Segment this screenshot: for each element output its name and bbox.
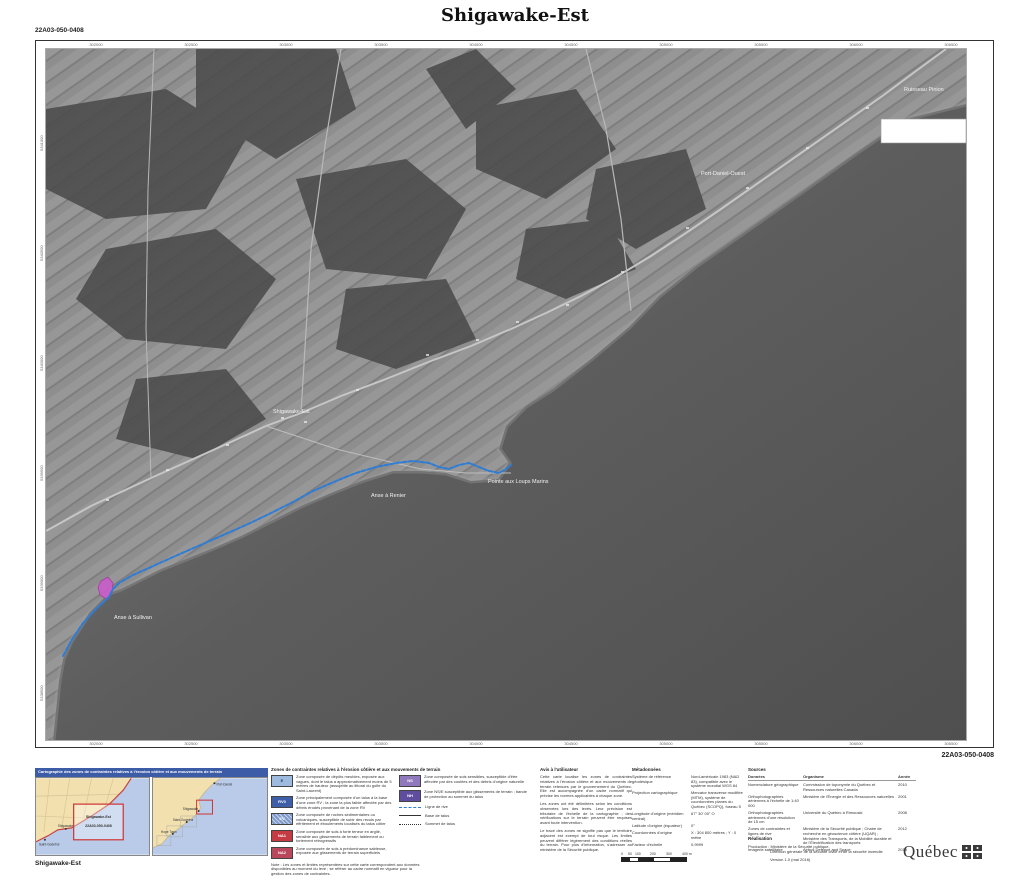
tick-label: 305000 bbox=[651, 741, 681, 746]
tick-label: 305500 bbox=[746, 741, 776, 746]
legend-item: NH Zone NS/E susceptible aux glissements… bbox=[399, 790, 531, 802]
map-label-pointe-aux-loups-marins: Pointe aux Loups Marins bbox=[488, 479, 549, 485]
legend-column-1: E Zone composée de dépôts meubles, expos… bbox=[271, 775, 393, 877]
metadata-value: 0,9999 bbox=[691, 843, 744, 848]
metadata-label: Facteur d'échelle bbox=[632, 843, 691, 848]
realisation-section: Réalisation Production : Ministère de la… bbox=[748, 836, 916, 862]
map-label-ruisseau-pinion: Ruisseau Pinion bbox=[904, 87, 944, 93]
sources-title: Sources bbox=[748, 767, 916, 772]
legend-swatch: E bbox=[271, 775, 293, 787]
tick-label: 303500 bbox=[366, 42, 396, 47]
tick-label: 304000 bbox=[461, 42, 491, 47]
aerial-imagery-svg: Ruisseau Pinion Port-Daniel-Ouest Shigaw… bbox=[46, 49, 966, 740]
metadata-value: X : 304 800 mètres ; Y : 0 mètre bbox=[691, 831, 744, 840]
locator-sheet-code: 22A03-050-0408 bbox=[85, 824, 112, 828]
legend-title: Zones de contraintes relatives à l'érosi… bbox=[271, 767, 533, 772]
legend-item-text: Zone composée de dépôts meubles, exposée… bbox=[296, 775, 393, 793]
caption-sheet-name: Shigawake-Est bbox=[35, 860, 81, 867]
quebec-logo: Québec bbox=[903, 842, 1013, 862]
legend-line-label: Ligne de rive bbox=[425, 805, 448, 810]
quebec-flag-icon bbox=[962, 845, 982, 859]
metadata-title: Métadonnées bbox=[632, 767, 744, 772]
scale-label: 100 bbox=[635, 852, 641, 856]
page-title: Shigawake-Est bbox=[0, 5, 1030, 26]
tick-label: 5340000 bbox=[39, 355, 44, 371]
sources-col-header: Données bbox=[748, 775, 803, 780]
notice-paragraph: Cette carte localise les zones de contra… bbox=[540, 775, 632, 799]
metadata-value: Mercator transverse modifiée (MTM), syst… bbox=[691, 791, 744, 809]
sheet-code-bottom: 22A03-050-0408 bbox=[795, 752, 994, 759]
legend-line-item: Sommet de talus bbox=[399, 822, 531, 827]
metadata-label: Latitude d'origine (équateur) bbox=[632, 824, 691, 829]
legend-item: E Zone composée de dépôts meubles, expos… bbox=[271, 775, 393, 793]
legend-swatch: NA1 bbox=[271, 830, 293, 842]
slope-base-line-symbol bbox=[399, 815, 421, 816]
tick-label: 303000 bbox=[271, 42, 301, 47]
legend-swatch: NS bbox=[399, 775, 421, 787]
source-data: Orthophotographies aériennes d'une résol… bbox=[748, 811, 803, 825]
metadata-section: Métadonnées Système de référence géodési… bbox=[632, 767, 744, 850]
slope-top-line-symbol bbox=[399, 824, 421, 825]
quebec-wordmark: Québec bbox=[903, 842, 958, 862]
legend-line-item: Base de talus bbox=[399, 814, 531, 819]
metadata-row: Latitude d'origine (équateur) 0° bbox=[632, 824, 744, 829]
realisation-title: Réalisation bbox=[748, 836, 916, 841]
locator-town-shigawake-2: Shigawake bbox=[183, 807, 199, 811]
sources-row: Orthophotographies aériennes à l'échelle… bbox=[748, 795, 916, 809]
map-label-anse-a-sullivan: Anse à Sullivan bbox=[114, 615, 152, 621]
sources-col-header: Année bbox=[898, 775, 916, 780]
sheet-code-top: 22A03-050-0408 bbox=[35, 27, 84, 34]
legend: Zones de contraintes relatives à l'érosi… bbox=[271, 767, 533, 877]
tick-label: 5340500 bbox=[39, 245, 44, 261]
locator-panel: Cartographie des zones de contraintes re… bbox=[35, 768, 268, 856]
scale-label: 300 bbox=[666, 852, 672, 856]
locator-map-detail: Shigawake-Est 22A03-050-0408 Shigawake S… bbox=[35, 777, 150, 856]
legend-item-text: Zone principalement composée d'un talus … bbox=[296, 796, 393, 810]
tick-label: 5341000 bbox=[39, 135, 44, 151]
legend-item: EV Zone composée de roches sédimentaires… bbox=[271, 813, 393, 827]
legend-item-text: Zone composée de roches sédimentaires ou… bbox=[296, 813, 393, 827]
source-org: Université du Québec à Rimouski bbox=[803, 811, 898, 825]
aerial-imagery: Ruisseau Pinion Port-Daniel-Ouest Shigaw… bbox=[46, 49, 966, 740]
scale-label: 200 bbox=[650, 852, 656, 856]
source-data: Nomenclature géographique bbox=[748, 783, 803, 792]
tick-label: 5338500 bbox=[39, 685, 44, 701]
scale-label: 0 bbox=[621, 852, 623, 856]
source-year: 2008 bbox=[898, 811, 916, 825]
source-year: 2010 bbox=[898, 783, 916, 792]
scale-label: 400 m bbox=[682, 852, 692, 856]
locator-town-hope-town: Hope Town bbox=[161, 830, 177, 834]
metadata-value: Nord-américain 1983 (NAD 83), compatible… bbox=[691, 775, 744, 789]
locator-town-shigawake: Shigawake bbox=[58, 824, 74, 828]
tick-label: 306000 bbox=[841, 741, 871, 746]
locator-town-port-daniel: Port-Daniel bbox=[216, 782, 232, 786]
metadata-label: Projection cartographique bbox=[632, 791, 691, 809]
realisation-direction: Direction générale de la sécurité civile… bbox=[748, 849, 916, 854]
scale-bar: 0 50 100 200 300 400 m bbox=[621, 852, 701, 864]
sources-row: Nomenclature géographique Commission de … bbox=[748, 783, 916, 792]
locator-town-saint-godefroi-2: Saint-Godefroi bbox=[173, 818, 194, 822]
legend-item-text: Zone composée de sols à prédominance sab… bbox=[296, 847, 393, 859]
legend-item-text: Zone composée de sols sensibles, suscept… bbox=[424, 775, 531, 787]
scale-bar-labels: 0 50 100 200 300 400 m bbox=[621, 852, 701, 857]
tick-label: 304500 bbox=[556, 42, 586, 47]
sources-row: Orthophotographies aériennes d'une résol… bbox=[748, 811, 916, 825]
tick-label: 302500 bbox=[176, 741, 206, 746]
tick-label: 304500 bbox=[556, 741, 586, 746]
legend-swatch: NH bbox=[399, 790, 421, 802]
legend-item: RV0 Zone principalement composée d'un ta… bbox=[271, 796, 393, 810]
tick-label: 5339000 bbox=[39, 575, 44, 591]
legend-line-item: Ligne de rive bbox=[399, 805, 531, 810]
map-label-anse-a-renier: Anse à Renier bbox=[371, 493, 406, 499]
sources-header-row: Données Organisme Année bbox=[748, 775, 916, 781]
tick-label: 306500 bbox=[936, 741, 966, 746]
source-data: Orthophotographies aériennes à l'échelle… bbox=[748, 795, 803, 809]
source-org: Ministère de l'Énergie et des Ressources… bbox=[803, 795, 898, 809]
notice-title: Avis à l'utilisateur bbox=[540, 767, 632, 772]
sources-col-header: Organisme bbox=[803, 775, 898, 780]
metadata-row: Facteur d'échelle 0,9999 bbox=[632, 843, 744, 848]
realisation-version: Version 1.0 (mai 2016) bbox=[748, 857, 916, 862]
metadata-value: 0° bbox=[691, 824, 744, 829]
metadata-row: Coordonnées d'origine X : 304 800 mètres… bbox=[632, 831, 744, 840]
tick-label: 302500 bbox=[176, 42, 206, 47]
legend-item: NA1 Zone composée de sols à forte teneur… bbox=[271, 830, 393, 844]
source-org: Commission de toponymie du Québec et Res… bbox=[803, 783, 898, 792]
locator-header: Cartographie des zones de contraintes re… bbox=[35, 768, 268, 777]
tick-label: 302000 bbox=[81, 741, 111, 746]
scale-label: 50 bbox=[628, 852, 632, 856]
map-frame: 302000 302500 303000 303500 304000 30450… bbox=[35, 40, 994, 748]
tick-label: 303000 bbox=[271, 741, 301, 746]
source-year: 2001 bbox=[898, 795, 916, 809]
tick-label: 306000 bbox=[841, 42, 871, 47]
legend-swatch: RV0 bbox=[271, 796, 293, 808]
user-notice: Avis à l'utilisateur Cette carte localis… bbox=[540, 767, 632, 856]
legend-item: NS Zone composée de sols sensibles, susc… bbox=[399, 775, 531, 787]
locator-sheet-name: Shigawake-Est bbox=[86, 815, 112, 819]
metadata-label: Coordonnées d'origine bbox=[632, 831, 691, 840]
metadata-row: Longitude d'origine (méridien central) 6… bbox=[632, 812, 744, 821]
metadata-value: 67° 30' 00" O bbox=[691, 812, 744, 821]
metadata-label: Longitude d'origine (méridien central) bbox=[632, 812, 691, 821]
tick-label: 303500 bbox=[366, 741, 396, 746]
tick-label: 304000 bbox=[461, 741, 491, 746]
tick-label: 5339500 bbox=[39, 465, 44, 481]
no-imagery-notch bbox=[881, 119, 966, 143]
legend-column-2: NS Zone composée de sols sensibles, susc… bbox=[399, 775, 531, 877]
locator-town-saint-godefroi: Saint-Godefroi bbox=[39, 843, 60, 847]
notice-paragraph: Les zones ont été délimitées selon les c… bbox=[540, 802, 632, 826]
tick-label: 305000 bbox=[651, 42, 681, 47]
legend-line-label: Sommet de talus bbox=[425, 822, 455, 827]
tick-label: 305500 bbox=[746, 42, 776, 47]
legend-swatch: NA2 bbox=[271, 847, 293, 859]
metadata-row: Système de référence géodésique Nord-amé… bbox=[632, 775, 744, 789]
tick-label: 302000 bbox=[81, 42, 111, 47]
tick-label: 306500 bbox=[936, 42, 966, 47]
map-label-shigawake-est: Shigawake-Est bbox=[273, 409, 310, 415]
legend-line-label: Base de talus bbox=[425, 814, 449, 819]
scale-bar-segments bbox=[621, 857, 687, 862]
metadata-label: Système de référence géodésique bbox=[632, 775, 691, 789]
legend-item-text: Zone NS/E susceptible aux glissements de… bbox=[424, 790, 531, 802]
shoreline-line-symbol bbox=[399, 807, 421, 808]
metadata-row: Projection cartographique Mercator trans… bbox=[632, 791, 744, 809]
legend-swatch: EV bbox=[271, 813, 293, 825]
legend-item-text: Zone composée de sols à forte teneur en … bbox=[296, 830, 393, 844]
legend-item: NA2 Zone composée de sols à prédominance… bbox=[271, 847, 393, 859]
sheet-extent-rect bbox=[74, 804, 124, 840]
map-sheet-page: Shigawake-Est 22A03-050-0408 302000 3025… bbox=[0, 0, 1030, 883]
locator-map-region: Port-Daniel Shigawake Saint-Godefroi Hop… bbox=[152, 777, 268, 856]
notice-paragraph: Le tracé des zones ne signifie pas que l… bbox=[540, 829, 632, 853]
map-label-port-daniel-ouest: Port-Daniel-Ouest bbox=[701, 171, 745, 177]
